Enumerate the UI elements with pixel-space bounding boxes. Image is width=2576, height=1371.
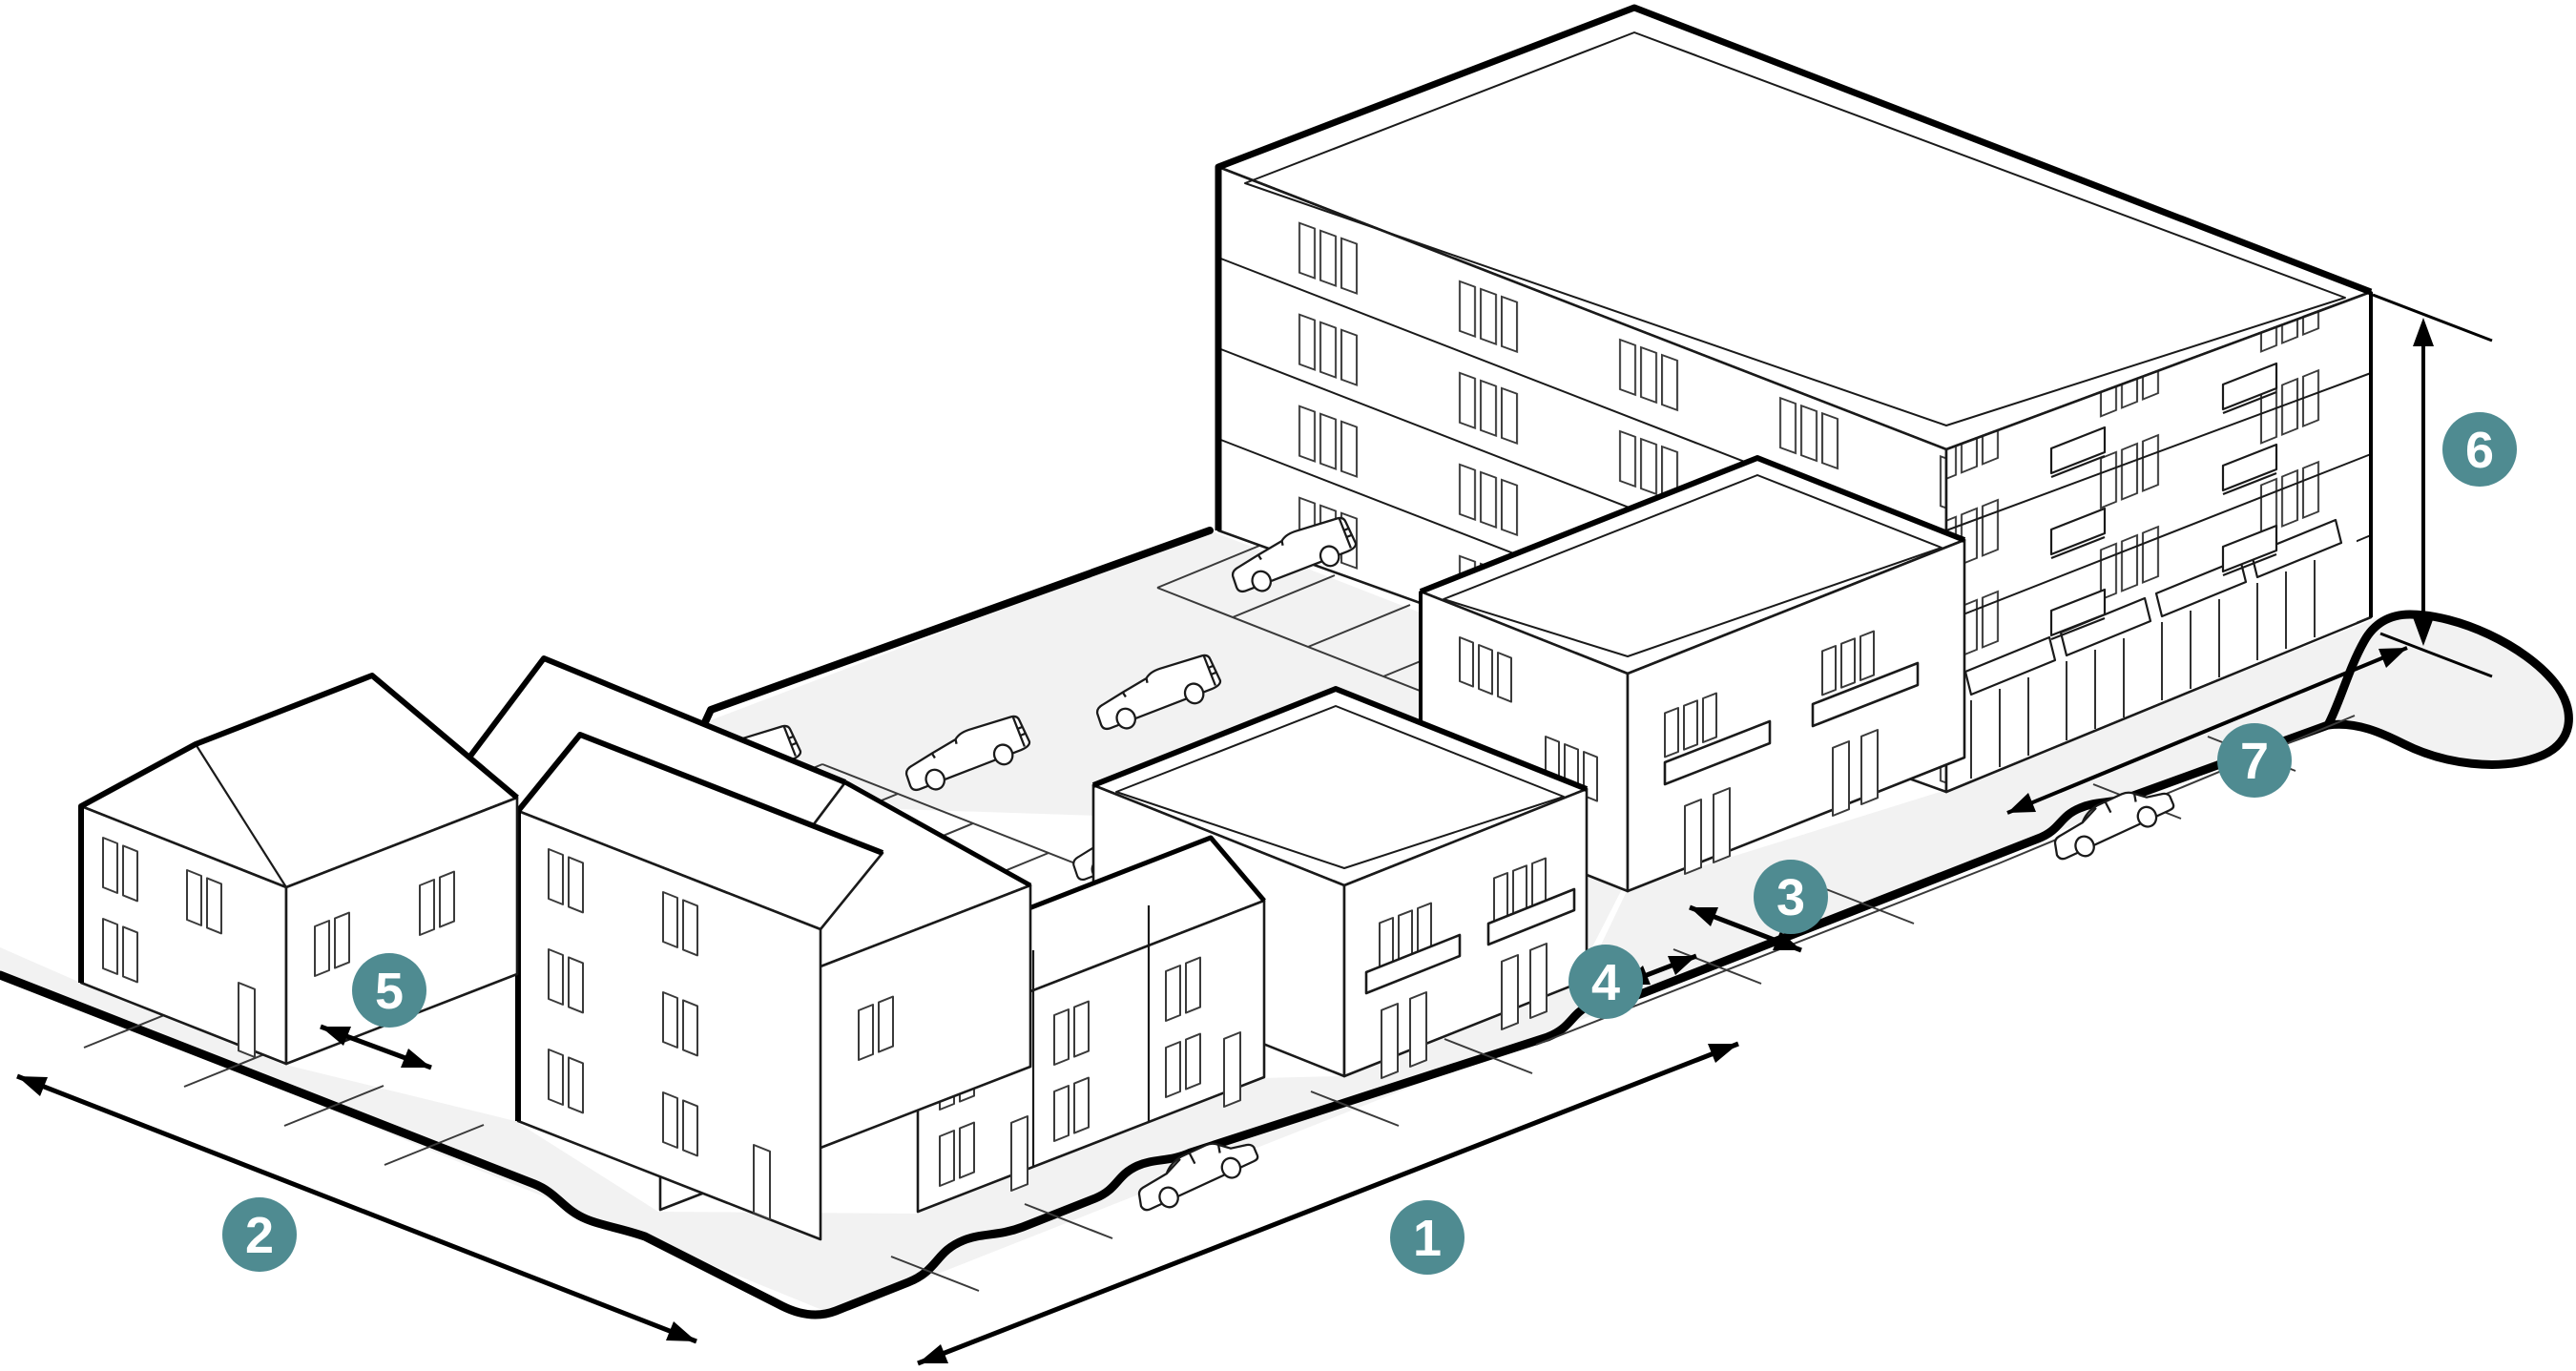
badge-2-number: 2 [245,1207,274,1264]
corner-house [81,675,517,1064]
badge-3-number: 3 [1776,869,1805,926]
badge-7-number: 7 [2240,733,2269,790]
dimension-arrow-5 [321,1027,431,1068]
badge-7: 7 [2217,723,2292,798]
badge-5: 5 [352,953,426,1028]
badge-4-number: 4 [1591,954,1620,1011]
curb-corner-bulge [2328,614,2568,764]
badge-1: 1 [1390,1200,1465,1275]
badge-1-number: 1 [1413,1210,1442,1267]
badge-5-number: 5 [375,963,404,1020]
badge-6-number: 6 [2465,422,2494,479]
diagram-canvas: 1 2 3 4 5 6 7 [0,0,2576,1371]
badge-4: 4 [1568,945,1643,1019]
badge-6: 6 [2442,412,2517,487]
badge-3: 3 [1754,860,1828,934]
urban-block-axonometric-diagram: 1 2 3 4 5 6 7 [0,0,2576,1371]
badge-2: 2 [222,1197,297,1272]
